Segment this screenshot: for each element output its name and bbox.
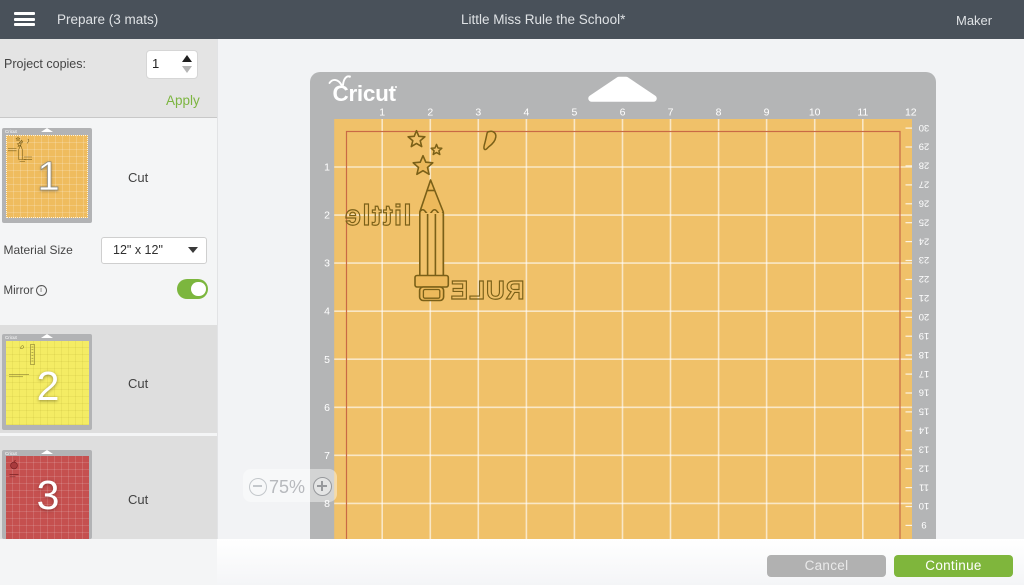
svg-text:23: 23: [919, 254, 930, 265]
svg-text:5: 5: [571, 107, 577, 119]
svg-text:13: 13: [919, 443, 930, 454]
svg-text:16: 16: [919, 387, 930, 398]
svg-text:29: 29: [919, 141, 930, 152]
svg-text:2: 2: [324, 210, 330, 222]
svg-text:4: 4: [324, 306, 330, 318]
svg-text:Cricut: Cricut: [333, 81, 397, 106]
svg-text:22: 22: [919, 273, 930, 284]
svg-text:19: 19: [919, 330, 930, 341]
svg-text:1: 1: [324, 162, 330, 174]
svg-text:6: 6: [324, 402, 330, 414]
svg-text:10: 10: [919, 500, 930, 511]
svg-text:12: 12: [905, 107, 917, 119]
svg-text:21: 21: [919, 292, 930, 303]
svg-text:28: 28: [919, 160, 930, 171]
svg-text:24: 24: [919, 235, 930, 246]
svg-text:27: 27: [919, 179, 930, 190]
svg-text:3: 3: [475, 107, 481, 119]
svg-text:7: 7: [324, 450, 330, 462]
svg-text:9: 9: [764, 107, 770, 119]
svg-text:15: 15: [919, 406, 930, 417]
svg-text:little: little: [343, 200, 411, 232]
svg-text:1: 1: [379, 107, 385, 119]
svg-text:9: 9: [921, 519, 926, 530]
svg-text:2: 2: [427, 107, 433, 119]
svg-text:RULE: RULE: [450, 275, 525, 305]
svg-text:11: 11: [919, 481, 929, 492]
svg-text:17: 17: [919, 368, 930, 379]
svg-text:3: 3: [324, 258, 330, 270]
svg-text:20: 20: [919, 311, 930, 322]
svg-text:5: 5: [324, 354, 330, 366]
svg-text:4: 4: [523, 107, 529, 119]
svg-text:10: 10: [809, 107, 821, 119]
svg-text:8: 8: [716, 107, 722, 119]
svg-text:12: 12: [919, 462, 930, 473]
svg-text:6: 6: [620, 107, 626, 119]
svg-text:11: 11: [857, 107, 868, 119]
svg-text:30: 30: [919, 122, 930, 133]
svg-text:7: 7: [668, 107, 674, 119]
svg-text:26: 26: [919, 198, 930, 209]
svg-text:25: 25: [919, 216, 930, 227]
svg-text:18: 18: [919, 349, 930, 360]
svg-text:14: 14: [919, 424, 930, 435]
